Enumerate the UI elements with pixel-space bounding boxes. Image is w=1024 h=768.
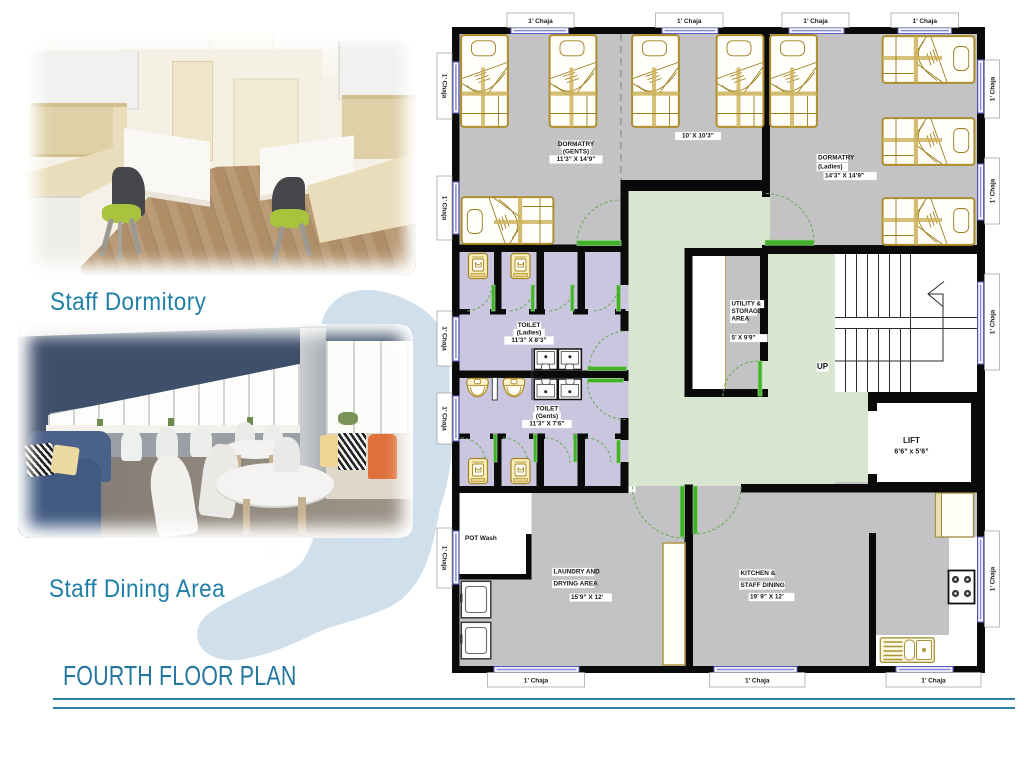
svg-text:11’3” X 14’9”: 11’3” X 14’9” <box>557 156 596 163</box>
svg-text:1’ Chaja: 1’ Chaja <box>441 406 448 431</box>
svg-text:14’3” X 14’9”: 14’3” X 14’9” <box>825 173 864 180</box>
svg-text:6’6” x 5’6”: 6’6” x 5’6” <box>894 449 928 456</box>
svg-text:1’ Chaja: 1’ Chaja <box>524 678 549 685</box>
svg-text:TOILET: TOILET <box>518 322 541 329</box>
svg-text:11’3” X 7’6”: 11’3” X 7’6” <box>529 421 564 428</box>
svg-text:1’ Chaja: 1’ Chaja <box>441 74 448 99</box>
svg-text:LIFT: LIFT <box>903 436 920 445</box>
svg-text:15’9” X 12’: 15’9” X 12’ <box>571 594 604 601</box>
svg-text:TOILET: TOILET <box>536 406 559 413</box>
svg-text:1’ Chaja: 1’ Chaja <box>441 196 448 221</box>
svg-text:1’ Chaja: 1’ Chaja <box>441 326 448 351</box>
svg-text:1’ Chaja: 1’ Chaja <box>803 18 828 25</box>
svg-text:5’ X 9’9”: 5’ X 9’9” <box>732 335 756 342</box>
svg-text:DORMATRY: DORMATRY <box>818 155 855 162</box>
svg-text:(Ladies): (Ladies) <box>517 330 542 337</box>
svg-text:1’ Chaja: 1’ Chaja <box>745 678 770 685</box>
svg-text:1’ Chaja: 1’ Chaja <box>990 76 997 101</box>
svg-text:STAFF DINING: STAFF DINING <box>741 582 785 589</box>
svg-text:DORMATRY: DORMATRY <box>558 141 595 148</box>
svg-text:1’ Chaja: 1’ Chaja <box>528 18 553 25</box>
svg-text:(GENTS): (GENTS) <box>563 149 589 156</box>
svg-text:1’ Chaja: 1’ Chaja <box>990 178 997 203</box>
svg-text:POT Wash: POT Wash <box>465 535 497 542</box>
svg-text:1’ Chaja: 1’ Chaja <box>990 566 997 591</box>
svg-text:1’ Chaja: 1’ Chaja <box>990 309 997 334</box>
svg-text:1’ Chaja: 1’ Chaja <box>441 546 448 571</box>
svg-text:11’3” X 8’3”: 11’3” X 8’3” <box>511 337 546 344</box>
svg-text:UTILITY &: UTILITY & <box>732 301 762 308</box>
svg-text:STORAGE: STORAGE <box>732 308 762 315</box>
svg-text:19’ 9” X 12’: 19’ 9” X 12’ <box>750 594 784 601</box>
svg-text:KITCHEN &: KITCHEN & <box>741 570 776 577</box>
svg-text:UP: UP <box>817 362 829 371</box>
svg-text:10’ X 10’3”: 10’ X 10’3” <box>682 133 714 140</box>
svg-text:1’ Chaja: 1’ Chaja <box>912 18 937 25</box>
svg-text:1’ Chaja: 1’ Chaja <box>677 18 702 25</box>
svg-text:LAUNDRY AND: LAUNDRY AND <box>554 569 601 576</box>
svg-text:(Gents): (Gents) <box>536 413 558 420</box>
svg-text:AREA: AREA <box>732 316 750 323</box>
svg-text:DRYING AREA: DRYING AREA <box>554 581 599 588</box>
svg-text:(Ladies): (Ladies) <box>818 164 843 171</box>
svg-text:1’ Chaja: 1’ Chaja <box>921 678 946 685</box>
